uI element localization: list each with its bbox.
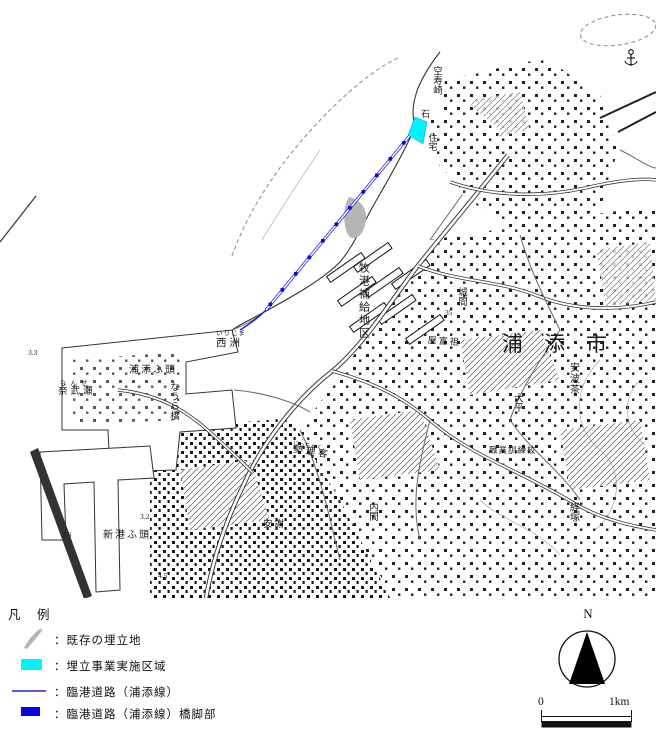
legend-divider: [0, 598, 656, 599]
legend-label-existing-reclaimed: ：既存の埋立地: [54, 632, 142, 648]
scale-zero-label: 0: [538, 696, 544, 708]
spot-elevation: 35: [445, 309, 453, 317]
map-label-urasoe-city: 浦添市: [502, 333, 628, 355]
compass-icon: [552, 624, 624, 694]
map-label-nabuse: 奈武瀬: [58, 388, 96, 398]
map-label-gusukuma: 城間: [455, 287, 465, 306]
map-label-aja: 安謝: [263, 521, 286, 531]
map-label-irijima-furigana: いりじま: [216, 331, 246, 338]
map-label-kujuzaki: 空寿崎: [430, 66, 440, 95]
map-label-kyozuka: 経塚: [567, 502, 578, 522]
spot-elevation: 4.5: [158, 572, 167, 580]
map-area: 空寿崎 石 住宅 牧港補給地区 浦添市 浦添ふ頭 なうら橋 なんせ 奈武瀬 いり…: [0, 0, 656, 600]
legend-label-reclamation-area: ：埋立事業実施区域: [54, 658, 167, 674]
legend-symbol-port-road-pier: [20, 706, 46, 718]
map-label-ishi: 石: [421, 110, 430, 119]
map-label-urasoe-wharf: 浦添ふ頭: [129, 366, 177, 377]
spot-elevation: 3.3: [28, 349, 37, 357]
figure-page: 空寿崎 石 住宅 牧港補給地区 浦添市 浦添ふ頭 なうら橋 なんせ 奈武瀬 いり…: [0, 0, 656, 736]
map-label-uchima: 内間: [366, 502, 376, 521]
north-label: N: [552, 606, 624, 622]
map-label-ohira: 大平: [511, 393, 521, 412]
legend-symbol-reclamation-area: [20, 658, 46, 672]
legend-symbol-existing-reclaimed: [20, 626, 46, 650]
legend-label-port-road-pier: ：臨港道路（浦添線）橋脚部: [54, 706, 217, 722]
topographic-map: [0, 0, 656, 600]
scale-bar-graphic: [536, 710, 640, 732]
spot-elevation: 2.6: [62, 531, 71, 539]
map-label-ahacha: 安波茶: [567, 362, 578, 395]
map-label-shinko-wharf: 新港ふ頭: [103, 531, 151, 542]
legend-label-port-road: ：臨港道路（浦添線）: [54, 684, 179, 700]
map-label-vocational-school: 職業訓練校: [489, 446, 537, 455]
legend-title: 凡 例: [8, 604, 52, 623]
map-label-naura-bridge: なうら橋: [167, 382, 177, 420]
scale-end-label: 1km: [609, 696, 629, 708]
map-label-makiminato-depot: 牧港補給地区: [357, 262, 369, 340]
map-label-jutaku: 住宅: [427, 133, 436, 151]
map-label-nishisu: 西洲: [216, 338, 243, 349]
spot-elevation: 3.2: [140, 513, 149, 521]
legend-symbol-port-road: [10, 686, 48, 696]
